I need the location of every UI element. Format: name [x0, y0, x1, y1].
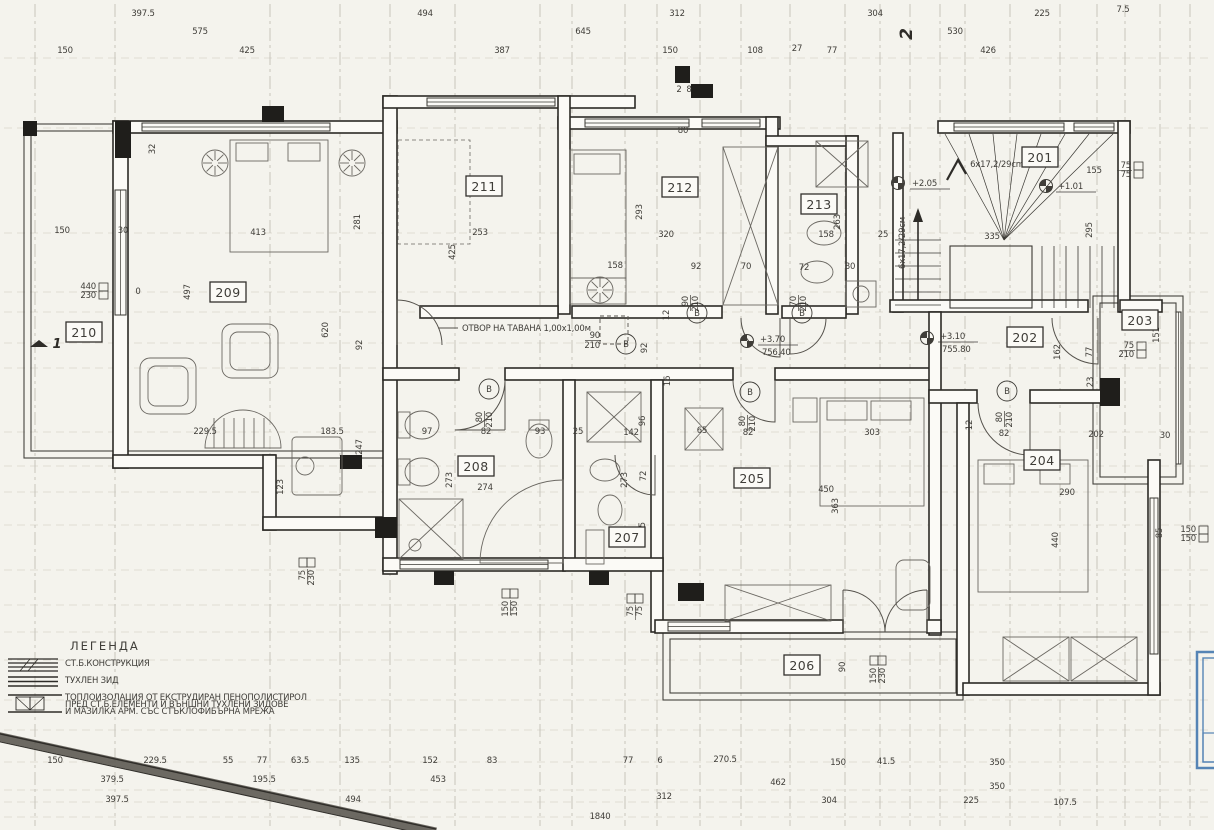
- dim-top: 494: [417, 9, 433, 19]
- fan-blade: [217, 155, 223, 161]
- pillow: [871, 401, 911, 420]
- dim-bottom: 350: [989, 782, 1005, 792]
- door-arc: [843, 590, 885, 632]
- annotation: 6x17,2/29cm: [970, 160, 1024, 170]
- wall: [563, 380, 575, 570]
- dim-inner: 273: [620, 472, 630, 488]
- pillow: [288, 143, 320, 161]
- fan-blade: [602, 292, 608, 298]
- room-number: 210: [71, 325, 96, 340]
- marker-box: [1134, 162, 1143, 170]
- door-height: 210: [485, 412, 495, 428]
- dim-inner: 497: [183, 284, 193, 300]
- dim-top: 304: [867, 9, 883, 19]
- wall: [563, 558, 663, 571]
- dim-top: 27: [792, 44, 802, 54]
- dim-inner: 303: [864, 428, 880, 438]
- bed: [820, 398, 924, 506]
- marker-box: [1137, 350, 1146, 358]
- column: [691, 84, 713, 98]
- door-tag-letter: В: [486, 385, 492, 395]
- dim-inner: 93: [535, 427, 545, 437]
- legend-symbol-rc-hatch: [28, 659, 38, 671]
- fan-blade: [344, 165, 350, 171]
- dim-bottom: 195.5: [252, 775, 275, 785]
- door-tag-letter: В: [623, 340, 629, 350]
- marker-box: [878, 656, 886, 665]
- window-sill: 210: [1118, 350, 1134, 360]
- dim-top: 397.5: [131, 9, 154, 19]
- dim-inner: 0: [135, 287, 140, 297]
- level-absolute: 756.40: [762, 348, 791, 358]
- level-symbol-quadrant: [747, 341, 754, 348]
- dim-inner: 23: [1086, 377, 1096, 387]
- marker-box: [1199, 534, 1208, 542]
- legend-item-label: И МАЗИЛКА АРМ. СЪС СТЪКЛОФИБЪРНА МРЕЖА: [65, 707, 275, 717]
- dim-inner: 92: [640, 343, 650, 353]
- dim-bottom: 462: [770, 778, 786, 788]
- dim-inner: 183.5: [320, 427, 343, 437]
- stair-arrow-head: [913, 208, 923, 222]
- wall: [383, 368, 459, 380]
- dim-bottom: 150: [830, 758, 846, 768]
- dim-inner: 96: [638, 416, 648, 426]
- window-sill: 230: [80, 291, 96, 301]
- column: [434, 571, 454, 585]
- window-sill: 75: [1121, 170, 1131, 180]
- dim-bottom: 107.5: [1053, 798, 1076, 808]
- door-width: 90: [681, 296, 691, 306]
- dim-inner: 274: [477, 483, 493, 493]
- window-sill: 230: [878, 668, 888, 684]
- wall: [929, 390, 977, 403]
- dim-inner: 70: [741, 262, 751, 272]
- level-value: +3.10: [940, 332, 965, 342]
- dim-inner: 293: [635, 204, 645, 220]
- wall: [383, 96, 397, 574]
- column: [115, 121, 131, 158]
- marker-box: [510, 589, 518, 598]
- dim-top: 150: [57, 46, 73, 56]
- pillow: [236, 143, 268, 161]
- room-number: 204: [1029, 453, 1054, 468]
- door-width: 80: [475, 412, 485, 422]
- window-marker: 7575: [626, 594, 645, 620]
- dim-inner: 158: [818, 230, 834, 240]
- stair-entry-arrow: [947, 160, 966, 180]
- dim-inner: 32: [148, 144, 158, 154]
- room-number: 202: [1012, 330, 1037, 345]
- bed: [570, 150, 626, 278]
- window-marker: 440230: [80, 282, 108, 301]
- dim-inner: 202: [1088, 430, 1104, 440]
- dim-bottom: 135: [344, 756, 360, 766]
- column: [678, 583, 704, 601]
- legend-item-label: ТУХЛЕН ЗИД: [64, 676, 119, 686]
- terrace-outlines: [24, 124, 1183, 700]
- door-marker: 80210: [995, 411, 1015, 428]
- dim-inner: 247: [355, 439, 365, 455]
- dim-bottom: 225: [963, 796, 979, 806]
- wall: [558, 96, 570, 314]
- dim-top: 645: [575, 27, 591, 37]
- door-marker: 80210: [475, 411, 495, 428]
- dim-inner: 155: [1086, 166, 1102, 176]
- window-marker: 75230: [298, 558, 317, 586]
- section-mark: [30, 340, 48, 347]
- level-value: +3.70: [760, 335, 785, 345]
- bed: [230, 140, 328, 252]
- dim-inner: 72: [639, 471, 649, 481]
- dim-bottom: 55: [223, 756, 233, 766]
- dim-bottom: 150: [47, 756, 63, 766]
- wall: [890, 300, 1088, 312]
- wall: [113, 455, 275, 468]
- dim-inner: 123: [276, 479, 286, 495]
- dim-inner: 82: [743, 428, 753, 438]
- dim-inner: 82: [481, 427, 491, 437]
- shelf: [570, 278, 626, 304]
- wall: [420, 306, 558, 318]
- dim-inner: 30: [118, 226, 128, 236]
- dim-inner: 72: [799, 263, 809, 273]
- dim-top: 530: [947, 27, 963, 37]
- pillow: [574, 154, 620, 174]
- level-value: +2.05: [912, 179, 937, 189]
- marker-box: [502, 589, 510, 598]
- wall: [1118, 121, 1130, 312]
- dim-bottom: 63.5: [291, 756, 309, 766]
- legend-symbol-rc-hatch: [20, 659, 30, 671]
- dim-inner: 80: [678, 126, 688, 136]
- fan-blade: [207, 165, 213, 171]
- dim-inner: 413: [250, 228, 266, 238]
- dim-top: 108: [747, 46, 763, 56]
- room-number: 201: [1027, 150, 1052, 165]
- level-symbol-quadrant: [1040, 180, 1047, 187]
- dim-top: 426: [980, 46, 996, 56]
- marker-box: [1134, 170, 1143, 178]
- level-value: +1.01: [1058, 182, 1083, 192]
- room-number: 207: [614, 530, 639, 545]
- armchair: [896, 560, 930, 610]
- site-boundary-line: [0, 733, 436, 830]
- dim-inner: 320: [658, 230, 674, 240]
- window-sill: 150: [510, 601, 520, 617]
- stamp-outer: [1197, 652, 1214, 768]
- door-height: 210: [584, 341, 600, 351]
- marker-box: [99, 283, 108, 291]
- window-marker: 75210: [1118, 341, 1146, 360]
- dim-inner: 85: [1155, 528, 1165, 538]
- column: [1100, 378, 1120, 406]
- column: [340, 455, 362, 469]
- fan-blade: [217, 165, 223, 171]
- marker-box: [307, 558, 315, 567]
- pillow: [984, 464, 1014, 484]
- door-arc: [790, 318, 826, 354]
- column: [262, 106, 284, 122]
- dim-inner: 440: [1051, 532, 1061, 548]
- dim-top: 425: [239, 46, 255, 56]
- toilet: [598, 495, 622, 525]
- fan-blade: [354, 155, 360, 161]
- window-marker: 150150: [1180, 525, 1208, 544]
- door-tag-letter: В: [1004, 387, 1010, 397]
- marker-box: [299, 558, 307, 567]
- marker-box: [870, 656, 878, 665]
- pillow: [827, 401, 867, 420]
- furniture: [140, 140, 1137, 681]
- dim-inner: 281: [353, 214, 363, 230]
- dim-top: 150: [662, 46, 678, 56]
- dim-inner: 263: [833, 214, 843, 230]
- door-tag-letter: В: [694, 309, 700, 319]
- door-width: 80: [738, 416, 748, 426]
- dim-inner: 77: [1085, 347, 1095, 357]
- armchair-seat: [230, 332, 270, 370]
- fan-blade: [592, 282, 598, 288]
- dim-inner: 290: [1059, 488, 1075, 498]
- door-height: 210: [1005, 412, 1015, 428]
- window-sill: 230: [307, 570, 317, 586]
- room-number: 211: [471, 179, 496, 194]
- legend-item-label: СТ.Б.КОНСТРУКЦИЯ: [65, 659, 150, 669]
- stair-winder: [1004, 134, 1017, 240]
- room-number: 206: [789, 658, 814, 673]
- wall: [963, 683, 1160, 695]
- room-number: 205: [739, 471, 764, 486]
- dim-inner: 90: [838, 662, 848, 672]
- dim-inner: 229.5: [193, 427, 216, 437]
- dim-inner: 363: [831, 498, 841, 514]
- level-absolute: 755.80: [942, 345, 971, 355]
- dim-inner: 142: [623, 428, 639, 438]
- wall: [929, 312, 941, 635]
- dim-inner: 158: [607, 261, 623, 271]
- dim-top: 225: [1034, 9, 1050, 19]
- dim-inner: 620: [321, 322, 331, 338]
- dim-bottom: 350: [989, 758, 1005, 768]
- fan-blade: [207, 155, 213, 161]
- nightstand: [793, 398, 817, 422]
- legend-symbol-ins-x: [30, 697, 44, 710]
- dim-bottom: 494: [345, 795, 361, 805]
- boundary-thick-line: [0, 736, 436, 830]
- bed-dashed: [398, 140, 470, 244]
- dim-inner: 425: [448, 244, 458, 260]
- dim-bottom: 152: [422, 756, 438, 766]
- wall: [1030, 390, 1106, 403]
- dim-bottom: 312: [656, 792, 672, 802]
- fan-blade: [344, 155, 350, 161]
- window-marker: 7575: [1117, 161, 1143, 180]
- column: [23, 121, 37, 136]
- dim-inner: 450: [818, 485, 834, 495]
- dim-inner: 162: [1053, 344, 1063, 360]
- dim-inner: 335: [984, 232, 1000, 242]
- fan-blade: [354, 165, 360, 171]
- room-number: 213: [806, 197, 831, 212]
- dim-bottom: 77: [623, 756, 633, 766]
- dim-bottom: 6: [657, 756, 662, 766]
- annotation: 6x17,2/29см: [898, 217, 908, 269]
- dim-bottom: 77: [257, 756, 267, 766]
- dim-inner: 92: [355, 340, 365, 350]
- dim-inner: 12: [662, 310, 672, 320]
- dim-inner: 80: [845, 262, 855, 272]
- annotation: 1: [52, 337, 61, 352]
- level-symbol-quadrant: [921, 332, 928, 339]
- fan-blade: [592, 292, 598, 298]
- column: [675, 66, 690, 83]
- room-number: 203: [1127, 313, 1152, 328]
- dim-top: 312: [669, 9, 685, 19]
- wall: [927, 620, 941, 633]
- window-sill: 75: [635, 606, 645, 616]
- terrace-210-outer: [24, 124, 390, 458]
- door-tag-letter: В: [747, 388, 753, 398]
- dim-inner: 30: [1160, 431, 1170, 441]
- dim-inner: 16: [663, 376, 673, 386]
- dim-inner: 25: [573, 427, 583, 437]
- marker-box: [1199, 526, 1208, 534]
- dim-bottom: 41.5: [877, 757, 895, 767]
- wall: [505, 368, 733, 380]
- legend-symbol-ins-x: [16, 697, 30, 710]
- floor-plan-svg: 90210В90210В70210В80210В80210В80210В4402…: [0, 0, 1214, 830]
- dim-inner: 25: [878, 230, 888, 240]
- door-tag-letter: В: [799, 309, 805, 319]
- annotation: 2: [897, 28, 917, 40]
- dim-bottom: 397.5: [105, 795, 128, 805]
- stamp-cell: [1203, 733, 1214, 762]
- dim-inner: 82: [999, 429, 1009, 439]
- column: [375, 517, 397, 538]
- dim-inner: 295: [1085, 222, 1095, 238]
- door-width: 90: [590, 331, 600, 341]
- dim-top: 77: [827, 46, 837, 56]
- dim-bottom: 270.5: [713, 755, 736, 765]
- marker-box: [635, 594, 643, 603]
- door-width: 70: [789, 296, 799, 306]
- dim-inner: 273: [445, 472, 455, 488]
- window-marker: 150150: [501, 589, 520, 617]
- legend-title: ЛЕГЕНДА: [70, 639, 140, 653]
- door-arc: [885, 590, 927, 632]
- dim-inner: 150: [54, 226, 70, 236]
- dim-inner: 97: [422, 427, 432, 437]
- dim-bottom: 1840: [590, 812, 611, 822]
- dim-top: 7.5: [1117, 5, 1130, 15]
- sink-back: [398, 412, 410, 438]
- door-marker: 90210: [584, 331, 601, 351]
- door-width: 80: [995, 412, 1005, 422]
- sink-back: [398, 459, 410, 485]
- column: [589, 571, 609, 585]
- dim-inner: 2: [676, 85, 681, 95]
- dim-inner: 253: [472, 228, 488, 238]
- bed: [978, 460, 1088, 592]
- dim-inner: 92: [691, 262, 701, 272]
- drain: [409, 539, 421, 551]
- room-number: 212: [667, 180, 692, 195]
- stamp-blue: [1197, 652, 1214, 768]
- dim-top: 387: [494, 46, 510, 56]
- stair-landing: [950, 246, 1032, 308]
- dim-bottom: 304: [821, 796, 837, 806]
- fan-blade: [602, 282, 608, 288]
- legend: ЛЕГЕНДА СТ.Б.КОНСТРУКЦИЯТУХЛЕН ЗИДТОПЛОИ…: [8, 639, 307, 717]
- floor-plan-sheet: 90210В90210В70210В80210В80210В80210В4402…: [0, 0, 1214, 830]
- marker-box: [627, 594, 635, 603]
- dim-top: 575: [192, 27, 208, 37]
- dim-inner: 65: [697, 426, 707, 436]
- wall: [775, 368, 931, 380]
- room-number: 208: [463, 459, 488, 474]
- dim-bottom: 379.5: [100, 775, 123, 785]
- dim-bottom: 229.5: [143, 756, 166, 766]
- wall: [651, 380, 663, 632]
- level-symbol-quadrant: [741, 335, 748, 342]
- wall: [957, 403, 969, 695]
- level-symbol-quadrant: [1046, 186, 1053, 193]
- dim-inner: 8: [686, 85, 691, 95]
- armchair-seat: [148, 366, 188, 406]
- dim-inner: 12: [965, 420, 975, 430]
- dim-bottom: 83: [487, 756, 497, 766]
- room-number: 209: [215, 285, 240, 300]
- dim-bottom: 453: [430, 775, 446, 785]
- annotation: ОТВОР НА ТАВАНА 1,00x1,00м: [462, 324, 591, 334]
- stamp-inner: [1203, 658, 1214, 762]
- window-sill: 150: [1180, 534, 1196, 544]
